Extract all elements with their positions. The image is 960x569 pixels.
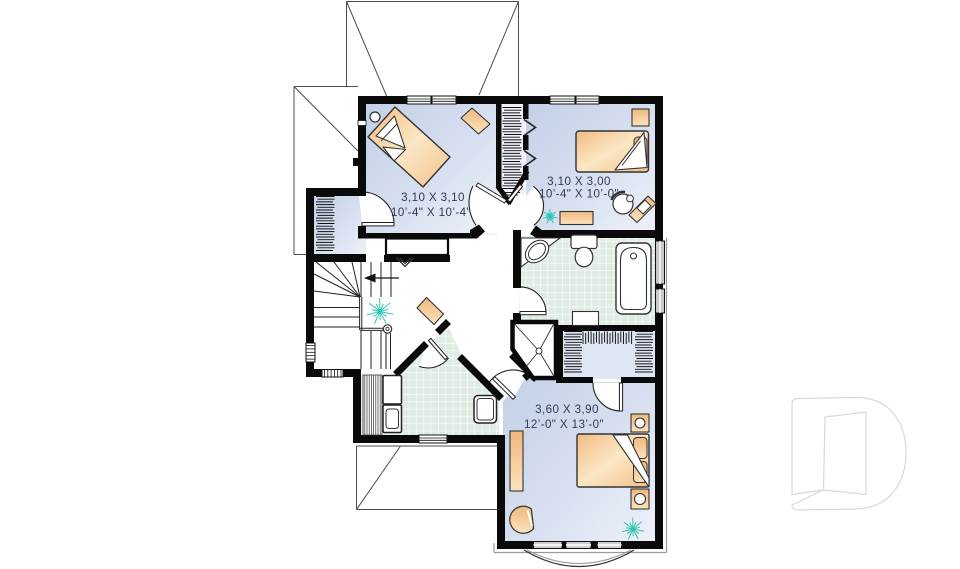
- svg-text:12’-0" X 13’-0": 12’-0" X 13’-0": [524, 418, 604, 431]
- svg-text:10’-4" X 10’-4": 10’-4" X 10’-4": [391, 206, 471, 219]
- svg-text:3,60 X 3,90: 3,60 X 3,90: [535, 403, 599, 416]
- svg-text:3,10 X 3,00: 3,10 X 3,00: [547, 175, 611, 188]
- svg-text:3,10 X 3,10: 3,10 X 3,10: [401, 191, 465, 204]
- svg-text:10’-4" X 10’-0": 10’-4" X 10’-0": [539, 188, 619, 201]
